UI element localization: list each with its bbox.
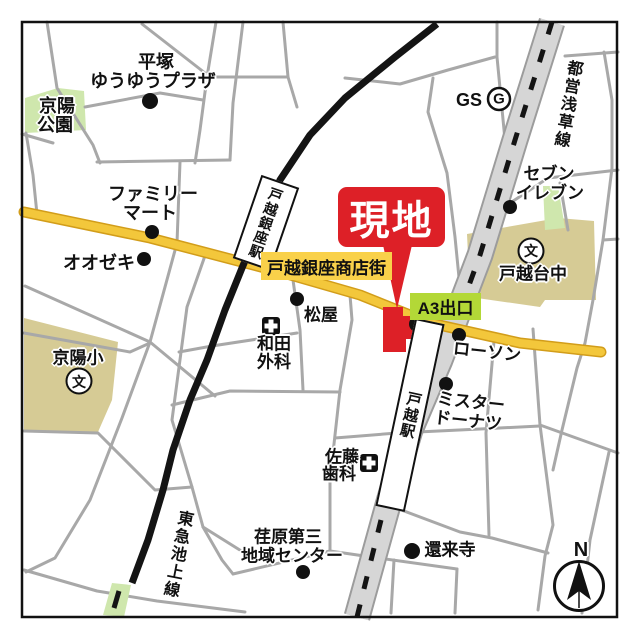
family-mart-label-1: ファミリー (108, 185, 198, 203)
ebara-center-label-1: 荏原第三 (254, 529, 322, 546)
keiyo-school-mark: 文 (72, 375, 86, 389)
oozeki-label: オオゼキ (63, 254, 135, 272)
gas-station-mark: G (493, 92, 505, 107)
sato-dental-cross-icon (360, 454, 378, 472)
togoshidai-school-mark: 文 (524, 244, 538, 258)
site-callout-text: 現地 (350, 188, 434, 246)
keiyo-park-label-1: 京陽 (39, 97, 75, 115)
ebara-center-label-2: 地域センター (241, 548, 343, 565)
sato-dental-label-1: 佐藤 (325, 449, 359, 466)
seven-eleven-dot (503, 200, 517, 214)
ebara-center-dot (296, 565, 310, 579)
a3-exit-label-text: A3出口 (418, 294, 474, 319)
family-mart-dot (145, 225, 159, 239)
sato-dental-label-2: 歯科 (322, 466, 356, 483)
oozeki-dot (137, 252, 151, 266)
wada-clinic-label-2: 外科 (257, 354, 291, 371)
site-callout: 現地 (338, 187, 445, 247)
wada-clinic-label-1: 和田 (257, 336, 291, 353)
togoshidai-junior-high-label: 戸越台中 (499, 266, 567, 283)
hiratsuka-plaza-label-1: 平塚 (138, 53, 174, 71)
genraiji-dot (404, 543, 420, 559)
a3-exit-label: A3出口 (410, 293, 481, 320)
shotengai-label: 戸越銀座商店街 (261, 252, 392, 280)
keiyo-park-label-2: 公園 (37, 116, 73, 134)
hiratsuka-plaza-dot (142, 93, 158, 109)
compass-icon (555, 561, 604, 611)
family-mart-label-2: マート (123, 204, 177, 222)
shotengai-label-text: 戸越銀座商店街 (267, 254, 386, 279)
togoshi-station-label: 戸越駅 (398, 390, 423, 440)
compass-north-label: N (574, 540, 588, 560)
seven-eleven-label-1: セブン (524, 166, 575, 183)
matsuya-label: 松屋 (304, 307, 338, 324)
wada-clinic-cross-icon (262, 317, 280, 335)
poi-dots (137, 93, 517, 579)
genraiji-temple-label: 還来寺 (425, 542, 476, 559)
matsuya-dot (290, 292, 304, 306)
location-map: 戸越銀座駅 戸越駅 平塚 ゆうゆうプラザ 京陽 公園 ファミリー マート オオゼ… (0, 0, 640, 640)
seven-eleven-label-2: イレブン (516, 185, 584, 202)
hiratsuka-plaza-label-2: ゆうゆうプラザ (90, 72, 216, 90)
keiyo-elementary-label: 京陽小 (53, 350, 104, 367)
gas-station-label: GS (456, 91, 482, 109)
